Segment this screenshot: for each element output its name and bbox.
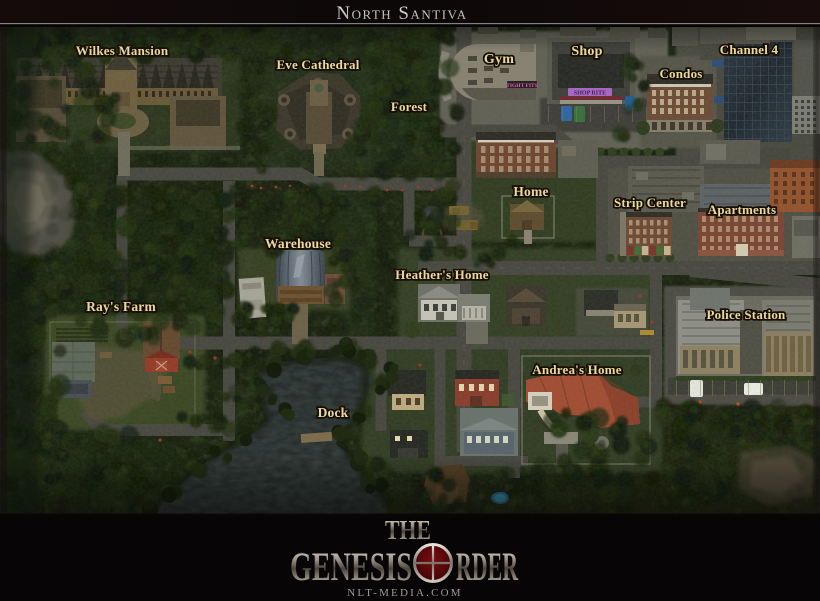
svg-text:Ray's Farm: Ray's Farm: [86, 299, 156, 314]
svg-text:Condos: Condos: [659, 66, 702, 81]
svg-text:Home: Home: [513, 184, 548, 199]
svg-text:North Santiva: North Santiva: [336, 3, 467, 24]
svg-text:Heather's Home: Heather's Home: [395, 267, 488, 282]
svg-text:Warehouse: Warehouse: [265, 236, 331, 251]
svg-text:RDER: RDER: [456, 544, 519, 589]
svg-text:NLT-MEDIA.COM: NLT-MEDIA.COM: [347, 587, 463, 599]
svg-text:Forest: Forest: [391, 99, 428, 114]
svg-text:GENESIS: GENESIS: [290, 544, 412, 589]
svg-text:Police Station: Police Station: [707, 307, 787, 322]
svg-text:Wilkes Mansion: Wilkes Mansion: [76, 43, 169, 58]
svg-text:Andrea's Home: Andrea's Home: [532, 362, 621, 377]
svg-text:Dock: Dock: [318, 405, 349, 420]
svg-text:Channel 4: Channel 4: [720, 42, 779, 57]
svg-text:Eve Cathedral: Eve Cathedral: [276, 57, 359, 72]
svg-text:Apartments: Apartments: [708, 202, 776, 217]
svg-text:Strip Center: Strip Center: [614, 195, 686, 210]
svg-text:THE: THE: [385, 515, 431, 545]
svg-text:Gym: Gym: [484, 52, 514, 67]
svg-text:Shop: Shop: [571, 44, 602, 59]
